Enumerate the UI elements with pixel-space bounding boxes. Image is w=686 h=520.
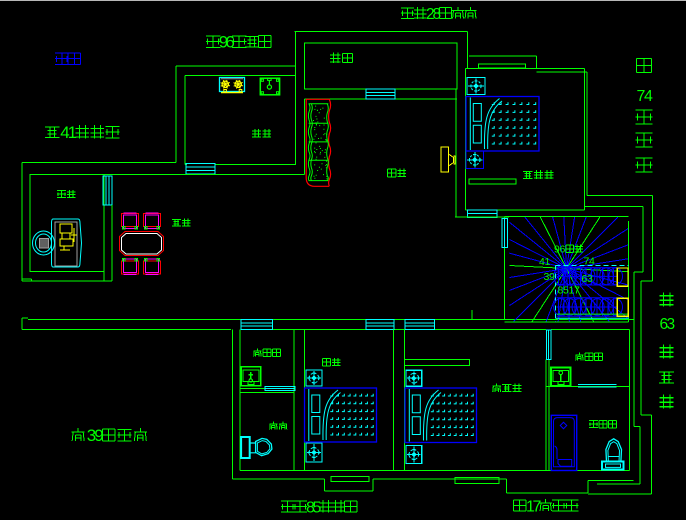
- svg-text:9: 9: [549, 271, 555, 283]
- svg-text:4: 4: [589, 256, 595, 268]
- svg-text:7: 7: [574, 285, 580, 297]
- svg-text:1: 1: [545, 256, 551, 268]
- svg-text:3: 3: [587, 273, 593, 285]
- svg-text:4: 4: [644, 88, 653, 105]
- svg-text:3: 3: [667, 316, 676, 333]
- svg-text:6: 6: [560, 244, 566, 256]
- svg-text:5: 5: [313, 499, 322, 516]
